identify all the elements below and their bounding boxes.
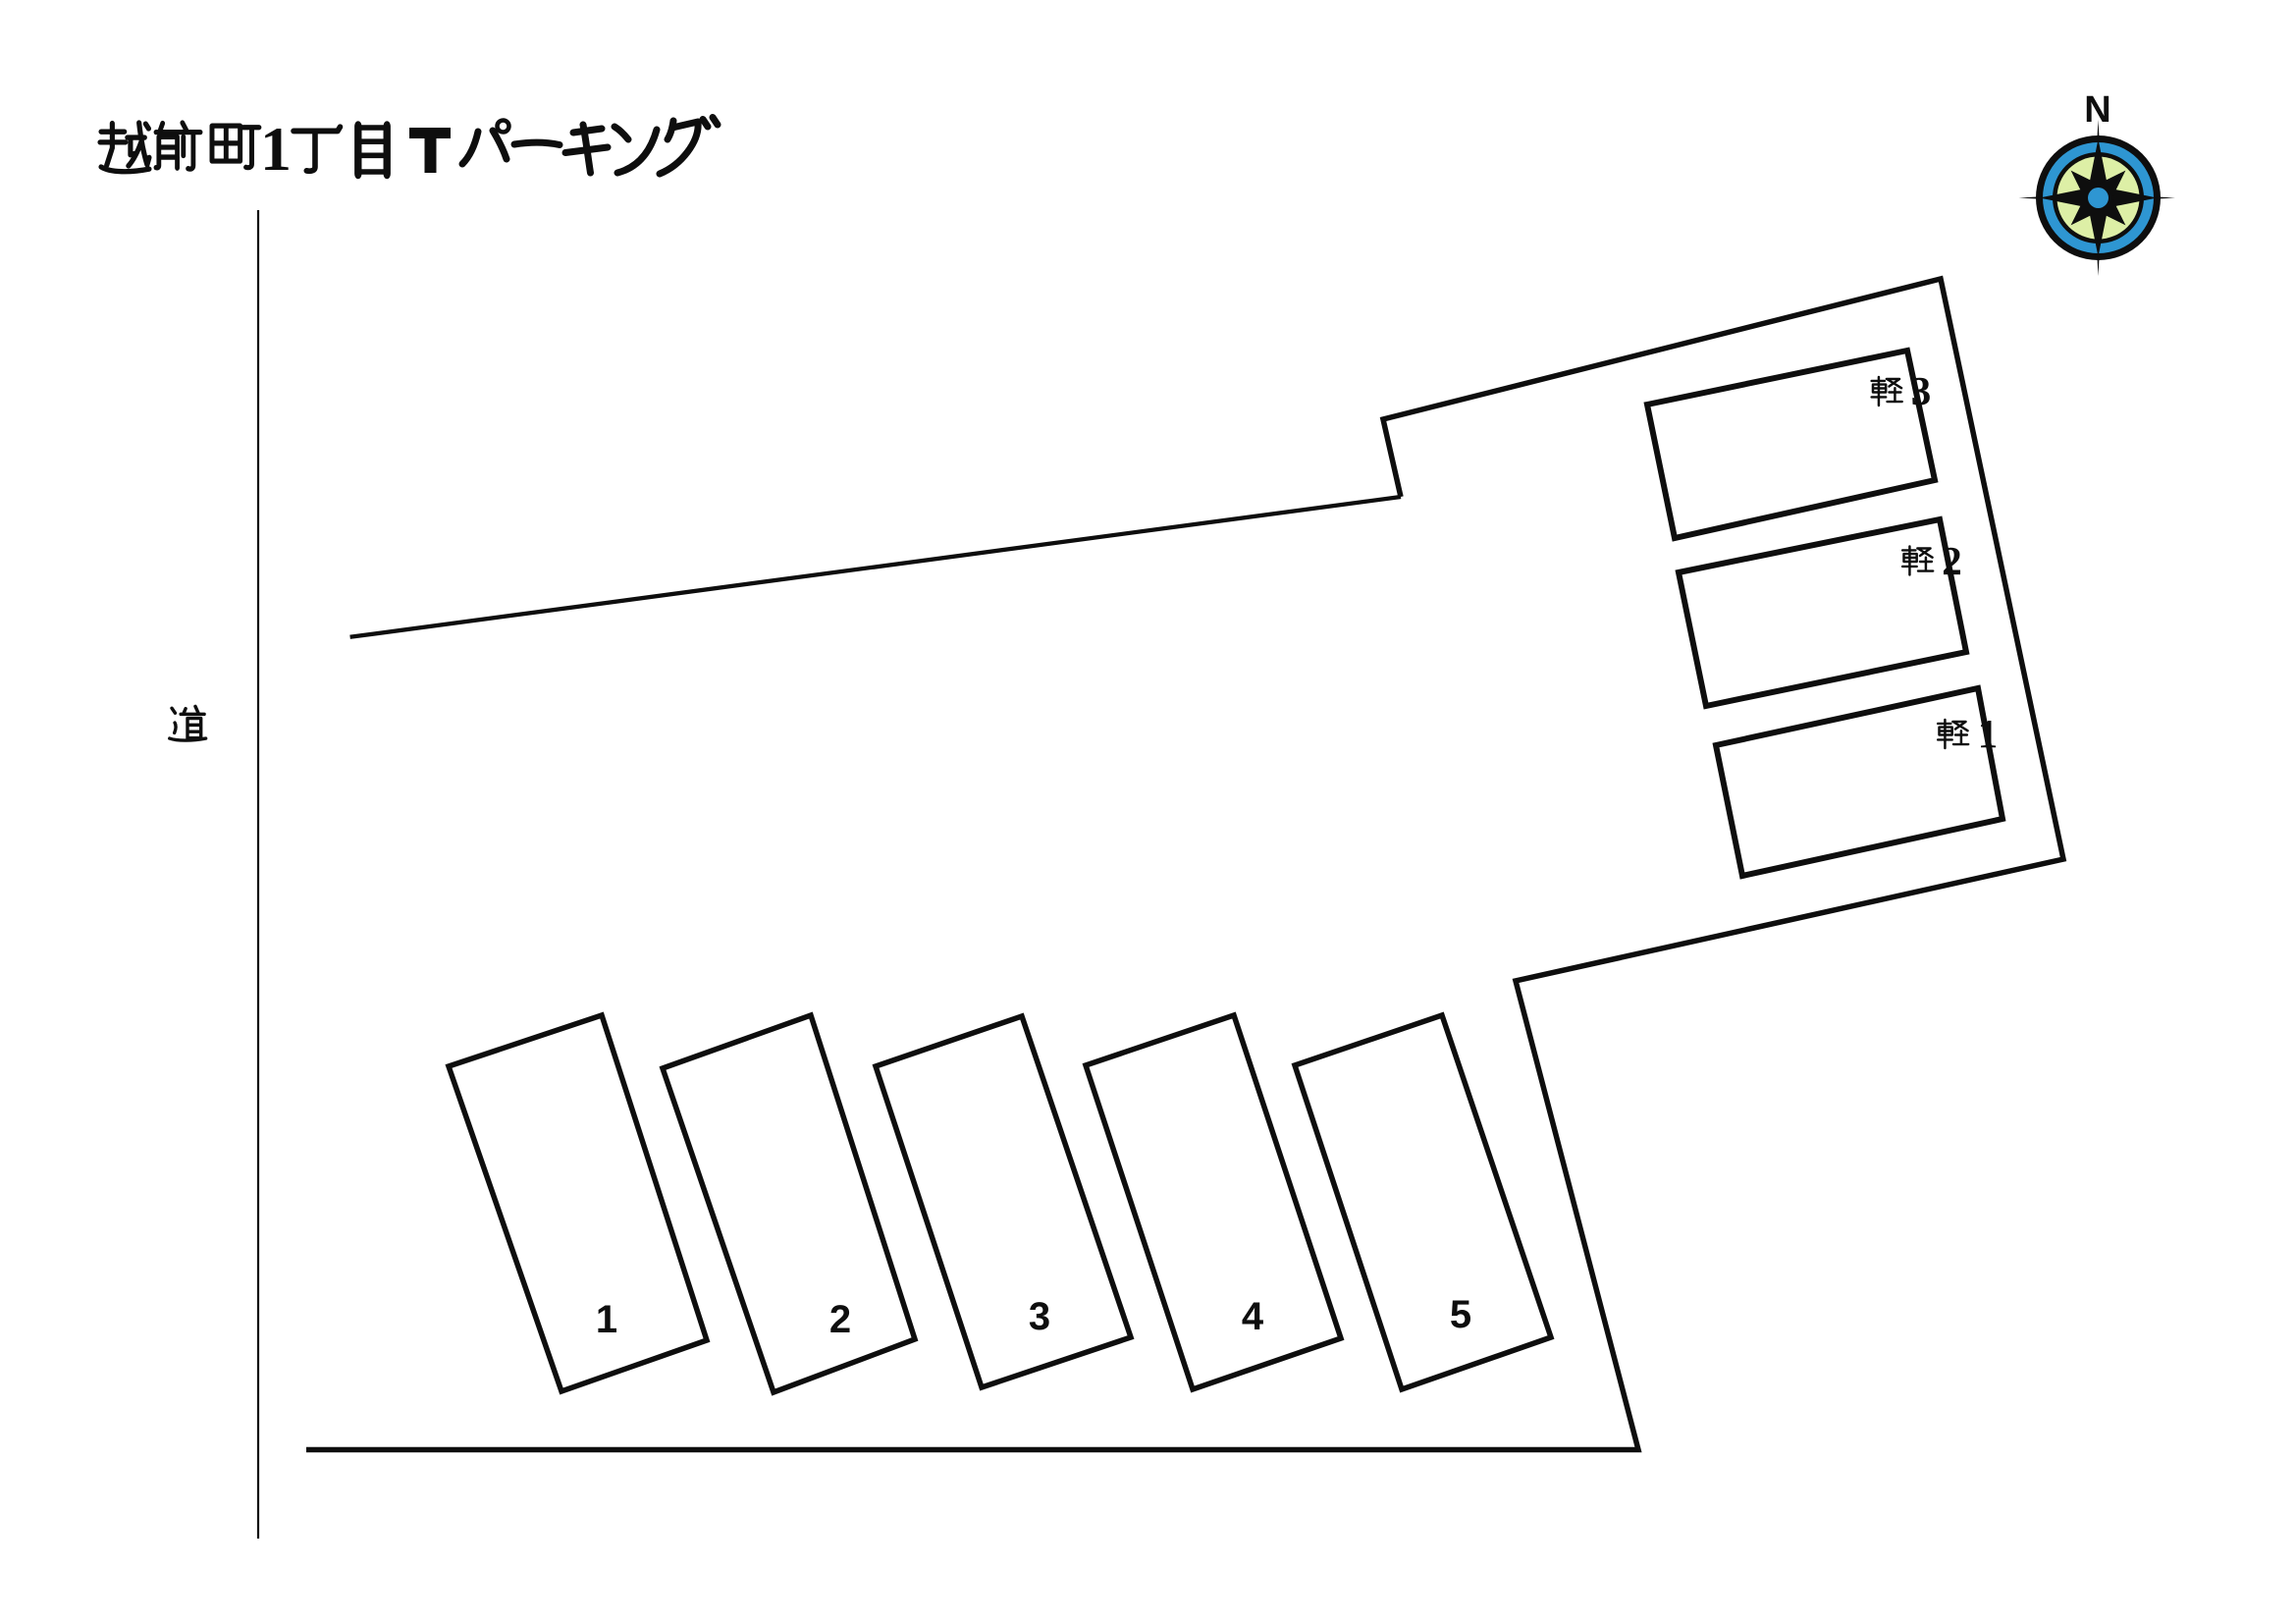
svg-text:3: 3 [1911,368,1932,413]
svg-text:N: N [2084,89,2110,131]
svg-text:1: 1 [1978,711,1999,756]
svg-text:2: 2 [1942,538,1962,583]
svg-text:1: 1 [260,114,292,184]
svg-text:4: 4 [1242,1295,1264,1338]
svg-text:1: 1 [596,1298,617,1341]
svg-text:5: 5 [1450,1293,1471,1336]
svg-text:2: 2 [829,1298,851,1341]
svg-text:3: 3 [1029,1295,1050,1338]
